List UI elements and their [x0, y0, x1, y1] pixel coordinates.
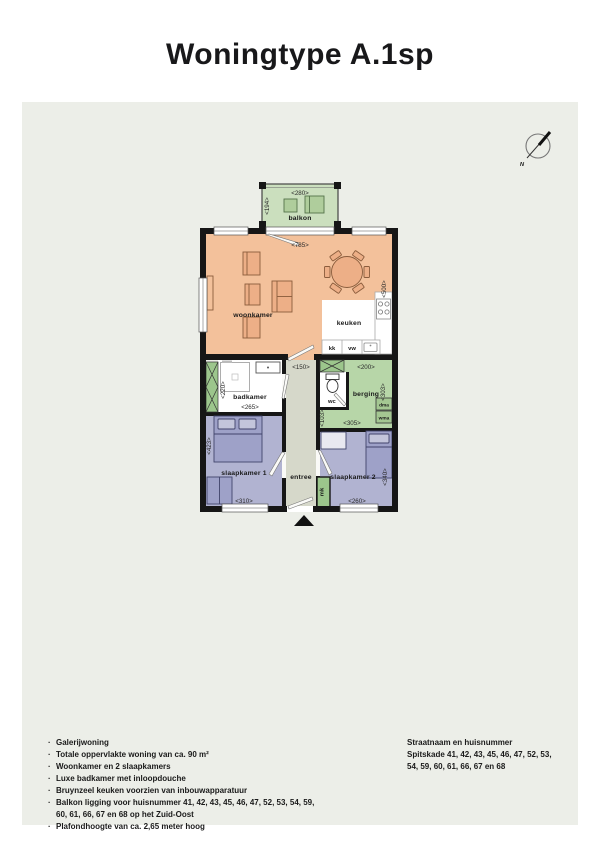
berging-dma-label: dma	[379, 403, 389, 409]
berging-dim-right: <303>	[380, 383, 387, 401]
room-balkon: <280> <194> balkon	[259, 182, 341, 229]
slaapkamer2-dim-right: <340>	[382, 468, 389, 486]
bullet: ·	[48, 773, 56, 785]
feature-text: Luxe badkamer met inloopdouche	[56, 773, 186, 785]
floorplan-drawing: N <280> <194> balkon	[0, 0, 600, 849]
address-line: 54, 59, 60, 61, 66, 67 en 68	[407, 761, 567, 773]
address-block: Straatnaam en huisnummer Spitskade 41, 4…	[407, 737, 567, 773]
wc-label: wc	[327, 399, 337, 405]
list-item: ·Totale oppervlakte woning van ca. 90 m²	[48, 749, 322, 761]
slaapkamer1-label: slaapkamer 1	[221, 470, 266, 477]
list-item: ·Plafondhoogte van ca. 2,65 meter hoog	[48, 821, 322, 833]
bullet: ·	[48, 821, 56, 833]
slaapkamer1-dim-left: <423>	[206, 437, 213, 455]
bullet: ·	[48, 797, 56, 821]
badkamer-dim-bottom: <265>	[241, 404, 259, 411]
meterkast: mk	[317, 477, 330, 507]
list-item: ·Galerijwoning	[48, 737, 322, 749]
entrance-arrow-icon	[294, 515, 314, 526]
balkon-dim-left: <194>	[264, 197, 271, 215]
feature-text: Bruynzeel keuken voorzien van inbouwappa…	[56, 785, 247, 797]
balkon-dim-top: <280>	[291, 190, 309, 197]
feature-list: ·Galerijwoning ·Totale oppervlakte wonin…	[48, 737, 322, 833]
feature-text: Plafondhoogte van ca. 2,65 meter hoog	[56, 821, 205, 833]
address-line: Spitskade 41, 42, 43, 45, 46, 47, 52, 53…	[407, 749, 567, 761]
bullet: ·	[48, 785, 56, 797]
keuken-vw-label: vw	[348, 346, 356, 352]
sink-icon	[364, 343, 377, 352]
badkamer-label: badkamer	[233, 394, 267, 401]
slaapkamer2-label: slaapkamer 2	[330, 474, 375, 481]
room-entree-floor	[286, 360, 316, 506]
mk-label: mk	[320, 487, 326, 496]
feature-text: Balkon ligging voor huisnummer 41, 42, 4…	[56, 797, 322, 821]
toilet-icon	[326, 374, 339, 393]
slaapkamer2-dim-bottom: <260>	[348, 498, 366, 505]
berging-dim-bottom: <305>	[343, 420, 361, 427]
list-item: ·Balkon ligging voor huisnummer 41, 42, …	[48, 797, 322, 821]
balkon-label: balkon	[288, 215, 311, 222]
compass-icon: N	[520, 132, 550, 168]
bullet: ·	[48, 737, 56, 749]
berging-label: berging	[353, 391, 379, 398]
keuken-kk-label: kk	[329, 346, 336, 352]
entree-dim-top: <150>	[292, 364, 310, 371]
list-item: ·Woonkamer en 2 slaapkamers	[48, 761, 322, 773]
slaapkamer1-dim-bottom: <310>	[235, 498, 253, 505]
feature-text: Totale oppervlakte woning van ca. 90 m²	[56, 749, 209, 761]
berging-dim-top: <200>	[357, 364, 375, 371]
woonkamer-dim-right: <500>	[381, 280, 388, 298]
berging-dim-left: <103>	[319, 409, 326, 427]
page: Woningtype A.1sp N <280> <194> balkon	[0, 0, 600, 849]
compass-north-label: N	[520, 162, 525, 168]
kast-left-icon	[206, 362, 218, 412]
berging-wma-label: wma	[378, 417, 390, 422]
entree-label: entree	[290, 474, 312, 481]
badkamer-dim-left: <220>	[220, 381, 227, 399]
address-title: Straatnaam en huisnummer	[407, 737, 567, 749]
bullet: ·	[48, 761, 56, 773]
woonkamer-label: woonkamer	[232, 312, 273, 319]
feature-text: Galerijwoning	[56, 737, 109, 749]
woonkamer-dim-top: <785>	[291, 242, 309, 249]
list-item: ·Bruynzeel keuken voorzien van inbouwapp…	[48, 785, 322, 797]
keuken-label: keuken	[337, 320, 362, 327]
kast-wc-icon	[320, 360, 344, 372]
list-item: ·Luxe badkamer met inloopdouche	[48, 773, 322, 785]
bullet: ·	[48, 749, 56, 761]
feature-text: Woonkamer en 2 slaapkamers	[56, 761, 171, 773]
